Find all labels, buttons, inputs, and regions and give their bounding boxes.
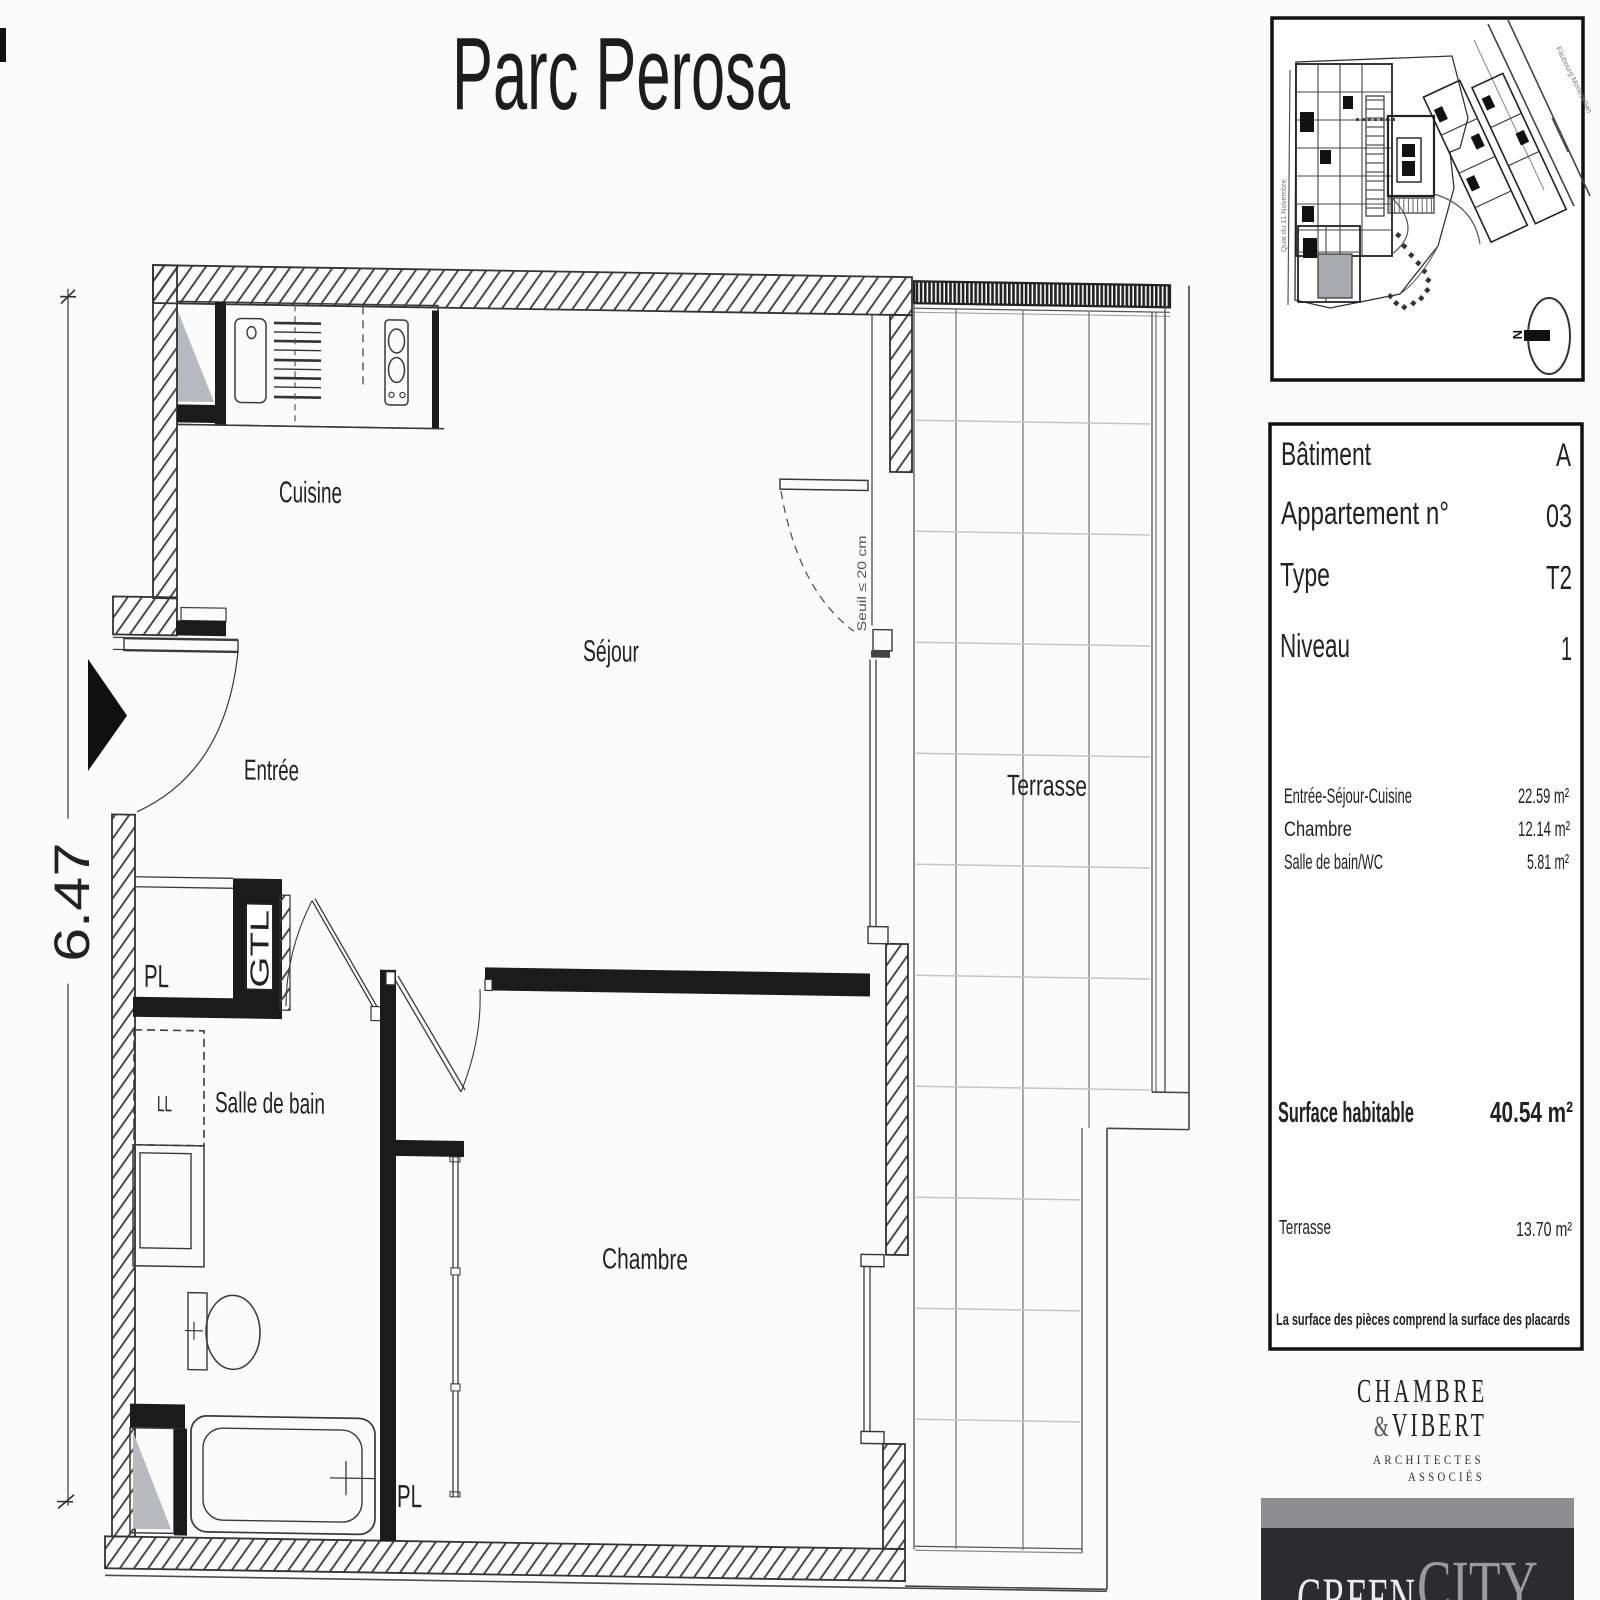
svg-text:A: A [1556,437,1571,473]
svg-text:GTL: GTL [245,910,275,988]
svg-text:Niveau: Niveau [1280,627,1350,664]
svg-text:03: 03 [1546,498,1572,534]
svg-text:Type: Type [1280,556,1330,593]
svg-text:Surface habitable: Surface habitable [1278,1097,1414,1129]
svg-text:Salle de bain: Salle de bain [215,1087,325,1121]
svg-text:Parc Perosa: Parc Perosa [452,16,790,131]
svg-text:ARCHITECTES: ARCHITECTES [1373,1452,1484,1467]
svg-text:Salle de bain/WC: Salle de bain/WC [1284,851,1383,874]
svg-text:Chambre: Chambre [602,1243,688,1276]
svg-text:PL: PL [144,958,169,994]
svg-text:N: N [1510,330,1525,339]
svg-text:La surface des pièces comprend: La surface des pièces comprend la surfac… [1276,1310,1570,1329]
svg-text:6.47: 6.47 [44,842,100,962]
svg-text:Terrasse: Terrasse [1007,770,1087,803]
svg-text:&VIBERT: &VIBERT [1374,1407,1487,1444]
svg-text:CHAMBRE: CHAMBRE [1357,1373,1488,1410]
svg-text:LL: LL [157,1091,172,1116]
svg-text:Terrasse: Terrasse [1279,1217,1331,1239]
svg-text:Entrée-Séjour-Cuisine: Entrée-Séjour-Cuisine [1284,785,1412,808]
svg-text:13.70 m²: 13.70 m² [1516,1219,1572,1241]
svg-text:PL: PL [397,1478,422,1514]
svg-text:Bâtiment: Bâtiment [1281,436,1371,472]
svg-text:5.81 m²: 5.81 m² [1527,851,1569,874]
svg-text:40.54 m²: 40.54 m² [1490,1097,1573,1129]
svg-text:CITY: CITY [1417,1546,1538,1600]
svg-text:Quai du 11 Novembre: Quai du 11 Novembre [1279,179,1288,252]
svg-text:Cuisine: Cuisine [279,476,342,510]
svg-text:12.14 m²: 12.14 m² [1518,818,1570,841]
svg-text:T2: T2 [1546,559,1572,596]
svg-text:1: 1 [1561,630,1572,667]
svg-text:22.59 m²: 22.59 m² [1518,785,1569,808]
svg-text:Chambre: Chambre [1284,818,1352,841]
svg-text:Appartement n°: Appartement n° [1281,495,1449,531]
svg-text:Séjour: Séjour [583,635,639,669]
svg-text:ASSOCIÉS: ASSOCIÉS [1408,1469,1485,1484]
svg-text:Entrée: Entrée [244,755,299,788]
svg-text:GREEN: GREEN [1297,1566,1415,1600]
svg-text:Seuil ≤ 20 cm: Seuil ≤ 20 cm [855,535,869,631]
